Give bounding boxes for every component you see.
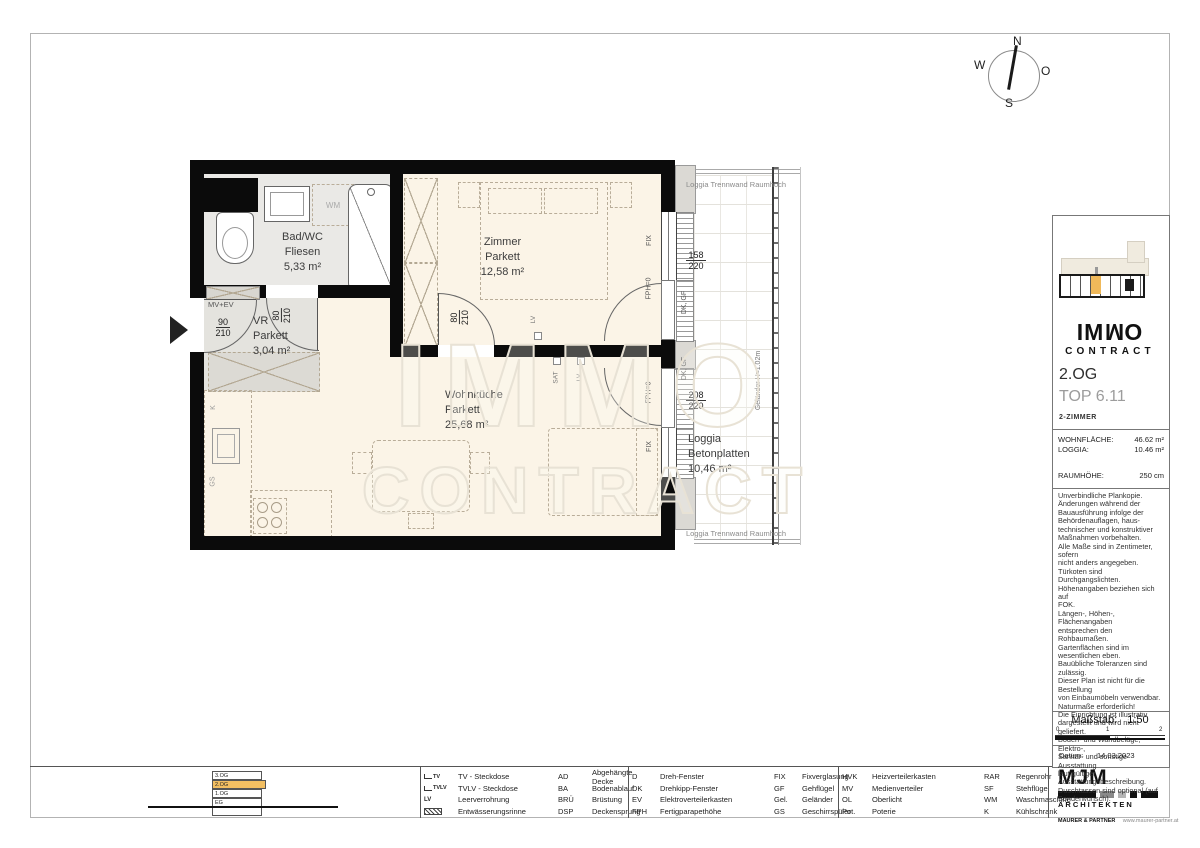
loggia-pier-top (675, 165, 696, 214)
lv-zimmer-label: LV (531, 315, 538, 322)
loggia-partition-bottom-line2 (694, 543, 800, 544)
dim-zimmer-window-height: 220 (688, 261, 703, 271)
legend-abbr: BA (558, 784, 592, 793)
chair-bottom (408, 513, 434, 529)
immo-logo-contract: CONTRACT (1053, 346, 1167, 357)
zimmer-wardrobe-1 (404, 178, 438, 264)
title-block: IMMO CONTRACT 2.OG TOP 6.11 2-ZIMMER WOH… (1052, 215, 1170, 768)
lv-zimmer-label-wrap: LV (526, 306, 542, 332)
architect-line2: MAURER & PARTNER (1058, 818, 1115, 824)
legend-abbr: DK (632, 784, 660, 793)
socket-line-icon (424, 786, 432, 791)
legend-label: Oberlicht (872, 795, 984, 804)
tvlv-socket-text: TVLV (433, 785, 447, 791)
window-fix-wk (661, 428, 677, 477)
architect-website: www.maurer-partner.at (1123, 818, 1179, 824)
immo-logo-o: O (1124, 319, 1143, 345)
mv-ev-label: MV+EV (208, 300, 234, 309)
loggia-partition-top-line (694, 169, 800, 170)
sidebar-divider-3 (1053, 711, 1169, 712)
metric-raumhoehe-value: 250 cm (1139, 471, 1164, 480)
fix-zimmer-label: FIX (645, 235, 652, 246)
dim-zimmer-door-height: 210 (461, 310, 471, 325)
legend-divider-4 (1048, 766, 1049, 818)
immo-logo: IMMO (1053, 320, 1167, 344)
dishwasher-label-wrap: GS (204, 468, 222, 494)
hatch-bar-icon (424, 808, 442, 815)
nightstand-left (458, 182, 480, 208)
legend-label: Entwässerungsrinne (458, 807, 558, 816)
window-glass-line (668, 212, 669, 280)
metric-raumhoehe-label: RAUMHÖHE: (1058, 471, 1104, 480)
room-wk-floor: Parkett (445, 403, 540, 418)
sidebar-divider-4 (1053, 745, 1169, 746)
room-label-zimmer: Zimmer Parkett 12,58 m² (455, 235, 550, 280)
legend-divider-2 (628, 766, 629, 818)
floor-selector-empty (212, 807, 262, 816)
burner (271, 517, 282, 528)
legend-label: Elektroverteilerkasten (660, 795, 774, 804)
loggia-partition-top-label: Loggia Trennwand Raumhoch (686, 180, 786, 189)
legend-abbr: SF (984, 784, 1016, 793)
legend-abbr: Pot. (842, 807, 872, 816)
metric-loggia-value: 10.46 m² (1134, 445, 1164, 454)
nightstand-right (610, 182, 632, 208)
room-loggia-area: 10,46 m² (688, 462, 783, 477)
key-plan (1053, 216, 1167, 319)
dkgf-wk-label: DK, GF (682, 356, 689, 379)
entrance-opening (190, 298, 204, 352)
room-vr-name: VR (253, 314, 323, 329)
legend-band-top-line (30, 766, 1169, 767)
tv-socket-text: TV (433, 774, 440, 780)
legend-abbr: FIX (774, 772, 802, 781)
compass-south-label: S (1005, 96, 1013, 110)
dim-entrance-height: 210 (215, 328, 230, 338)
burner (271, 502, 282, 513)
legend-abbr: GF (774, 784, 802, 793)
burner (257, 517, 268, 528)
room-zimmer-floor: Parkett (455, 250, 550, 265)
lv-symbol: LV (424, 797, 458, 803)
metric-loggia-label: LOGGIA: (1058, 445, 1089, 454)
fridge-label-wrap: K (204, 396, 222, 418)
toilet (216, 212, 254, 264)
legend-abbr: OL (842, 795, 872, 804)
loggia-railing (772, 167, 779, 545)
room-vr-area: 3,04 m² (253, 344, 323, 359)
immo-logo-i: I (1077, 319, 1084, 345)
compass-east-label: O (1041, 64, 1050, 78)
legend-abbr: DSP (558, 807, 592, 816)
ground-line (148, 806, 338, 808)
wall-top (190, 160, 675, 174)
wall-right-2 (661, 340, 675, 368)
entrance-arrow (170, 316, 188, 344)
date-value: 14.03.2023 (1097, 751, 1135, 760)
dim-entrance-width: 90 (216, 317, 230, 328)
wall-zimmer-wk-right (494, 345, 661, 357)
wall-left-lower (190, 352, 204, 536)
immo-logo-m2-flipped: M (1104, 320, 1124, 344)
legend-divider-3 (838, 766, 839, 818)
washbasin-bowl (270, 192, 304, 216)
window-sill-1 (676, 212, 694, 282)
chair-left (352, 452, 372, 474)
legend-cell-2: D Dreh-Fenster FIX Fixverglasung DK Dreh… (632, 769, 836, 820)
unit-type: 2-ZIMMER (1059, 414, 1097, 421)
metric-raumhoehe: RAUMHÖHE: 250 cm (1053, 471, 1169, 480)
wall-bad-vr-right (318, 285, 403, 298)
legend-divider-1 (420, 766, 421, 818)
lv-wk-label: LV (577, 373, 584, 380)
compass-west-label: W (974, 58, 985, 72)
window-glass-line (668, 428, 669, 477)
dim-zimmer-window-width: 158 (686, 250, 705, 261)
legend-abbr: GS (774, 807, 802, 816)
compass: N O S W (975, 36, 1057, 114)
railing-label-text: Geländer H=1.02m (756, 350, 763, 409)
date-label: Datum: (1059, 751, 1083, 760)
sat-label: SAT (552, 371, 559, 383)
sidebar-divider-1 (1053, 429, 1169, 430)
metric-wohnflaeche: WOHNFLÄCHE: 46.62 m² (1053, 435, 1169, 444)
fph-zimmer-label: FPH=0 (645, 277, 652, 299)
key-plan-highlighted-unit (1091, 276, 1101, 294)
legend-abbr: K (984, 807, 1016, 816)
dkgf-wk-wrap: DK, GF (674, 346, 696, 390)
scale-tick-2: 2 (1159, 727, 1162, 733)
kitchen-stove (253, 498, 287, 534)
tvlv-socket-icon: TVLV (424, 785, 458, 791)
floor-title: 2.OG (1059, 366, 1097, 384)
fridge-label: K (209, 405, 216, 410)
loggia-partition-bottom-line (694, 539, 800, 540)
sat-label-wrap: SAT (549, 364, 563, 390)
washbasin (264, 186, 310, 222)
kitchen-sink-basin (217, 434, 235, 458)
chair-right (470, 452, 490, 474)
room-loggia-name: Loggia (688, 432, 783, 447)
fix-zimmer-wrap: FIX (638, 220, 660, 260)
wall-bottom (190, 536, 675, 550)
bathtub (348, 184, 394, 292)
key-plan-detail (1125, 279, 1134, 291)
room-bad-area: 5,33 m² (255, 260, 350, 275)
zimmer-door-opening (438, 345, 494, 357)
tv-socket-icon: TV (424, 774, 458, 780)
immo-logo-m1: M (1084, 319, 1104, 345)
room-label-vr: VR Parkett 3,04 m² (253, 314, 323, 359)
legend-abbr: RAR (984, 772, 1016, 781)
zimmer-wardrobe-2 (404, 262, 438, 347)
pillow-right (544, 188, 598, 214)
room-zimmer-name: Zimmer (455, 235, 550, 250)
legend-abbr: FPH (632, 807, 660, 816)
lv-wk-label-wrap: LV (573, 364, 587, 390)
scale-row: Maßstab: 1:50 (1053, 714, 1167, 726)
legend-label: Heizverteilerkasten (872, 772, 984, 781)
lv-socket-zimmer (534, 332, 542, 340)
window-fix-zimmer (661, 212, 677, 280)
room-vr-floor: Parkett (253, 329, 323, 344)
pillow-left (488, 188, 542, 214)
room-label-wk: Wohnküche Parkett 25,68 m² (445, 388, 540, 433)
zimmer-door-leaf (438, 293, 439, 345)
legend-cell-3: HVK Heizverteilerkasten RAR Regenrohr MV… (842, 769, 1046, 820)
scale-value: 1:50 (1127, 714, 1148, 726)
wall-bad-zimmer (390, 174, 403, 357)
room-wk-area: 25,68 m² (445, 418, 540, 433)
dishwasher-label: GS (210, 476, 217, 486)
room-wk-name: Wohnküche (445, 388, 540, 403)
burner (257, 502, 268, 513)
legend-abbr: Gel. (774, 795, 802, 804)
fph-wk-label: FPH=0 (645, 381, 652, 403)
unit-title: TOP 6.11 (1059, 388, 1126, 406)
bad-shaft (204, 178, 258, 212)
floorplan-sheet: N O S W Loggia Trennwand Raumhoch Loggia… (0, 0, 1200, 848)
compass-north-label: N (1013, 34, 1022, 48)
loggia-door-wk (661, 368, 675, 428)
legend-label: TV - Steckdose (458, 772, 558, 781)
wall-zimmer-wk-left (390, 345, 438, 357)
floor-selector-1og: 1.OG (212, 789, 262, 798)
sidebar-divider-2 (1053, 488, 1169, 489)
dkgf-zimmer-wrap: DK, GF (674, 280, 696, 324)
loggia-pier-bottom (675, 477, 696, 530)
legend-label: Medienverteiler (872, 784, 984, 793)
wall-right-3 (661, 477, 675, 550)
legend-label: Dreh-Fenster (660, 772, 774, 781)
legend-abbr: D (632, 772, 660, 781)
room-label-bad: Bad/WC Fliesen 5,33 m² (255, 230, 350, 275)
room-bad-name: Bad/WC (255, 230, 350, 245)
mv-ev-cabinet (206, 286, 260, 300)
dim-entrance: 90210 (208, 317, 238, 338)
scale-bar-left (1055, 736, 1110, 740)
loggia-door-zimmer (661, 280, 675, 340)
dim-zimmer-window: 158220 (682, 250, 710, 271)
dim-wk-window: 208220 (682, 390, 710, 411)
legend-abbr: BRÜ (558, 795, 592, 804)
washing-machine-label: WM (326, 201, 340, 210)
metric-loggia: LOGGIA: 10.46 m² (1053, 445, 1169, 454)
scale-tick-1: 1 (1106, 727, 1109, 733)
metric-wohnflaeche-label: WOHNFLÄCHE: (1058, 435, 1113, 444)
room-bad-floor: Fliesen (255, 245, 350, 260)
legend-cell-1: TV TV - Steckdose AD Abgehängte Decke TV… (424, 769, 626, 820)
key-plan-stub (1095, 267, 1098, 274)
legend-abbr: AD (558, 772, 592, 781)
dining-table (372, 440, 470, 512)
scale-bar-right (1110, 738, 1165, 740)
scale-label: Maßstab: (1071, 714, 1117, 726)
fph-zimmer-wrap: FPH=0 (638, 266, 660, 310)
shower-head (367, 188, 375, 196)
wall-left-upper (190, 160, 204, 298)
fix-wk-wrap: FIX (638, 426, 660, 466)
legend-label: Leerverrohrung (458, 795, 558, 804)
dim-zimmer-door: 80210 (446, 296, 474, 340)
dkgf-zimmer-label: DK, GF (682, 290, 689, 313)
room-zimmer-area: 12,58 m² (455, 265, 550, 280)
legend-label: Fertigparapethöhe (660, 807, 774, 816)
railing-label: Geländer H=1.02m (746, 318, 772, 442)
loggia-partition-bottom-label: Loggia Trennwand Raumhoch (686, 529, 786, 538)
loggia-partition-top-line2 (694, 173, 800, 174)
fph-wk-wrap: FPH=0 (638, 370, 660, 414)
legend-label: TVLV - Steckdose (458, 784, 558, 793)
dim-wk-window-height: 220 (688, 401, 703, 411)
room-label-loggia: Loggia Betonplatten 10,46 m² (688, 432, 783, 477)
dim-wk-window-width: 208 (686, 390, 705, 401)
drainage-channel-icon (424, 808, 458, 815)
metric-wohnflaeche-value: 46.62 m² (1134, 435, 1164, 444)
room-loggia-floor: Betonplatten (688, 447, 783, 462)
toilet-bowl (222, 227, 248, 259)
legend-abbr: WM (984, 795, 1016, 804)
wall-right-1 (661, 160, 675, 212)
fix-wk-label: FIX (645, 441, 652, 452)
legend-label: Poterie (872, 807, 984, 816)
floor-selector-2og-active: 2.OG (212, 780, 266, 789)
floor-selector-3og: 3.OG (212, 771, 262, 780)
dim-zimmer-door-width: 80 (449, 311, 460, 325)
key-plan-building-wing (1127, 241, 1145, 263)
kitchen-sink (212, 428, 240, 464)
loggia-outer-edge (800, 167, 801, 545)
socket-line-icon (424, 774, 432, 779)
scale-tick-0: 0 (1056, 727, 1059, 733)
legend-abbr: HVK (842, 772, 872, 781)
legend-label: Drehkipp-Fenster (660, 784, 774, 793)
legend-abbr: EV (632, 795, 660, 804)
legend-abbr: MV (842, 784, 872, 793)
